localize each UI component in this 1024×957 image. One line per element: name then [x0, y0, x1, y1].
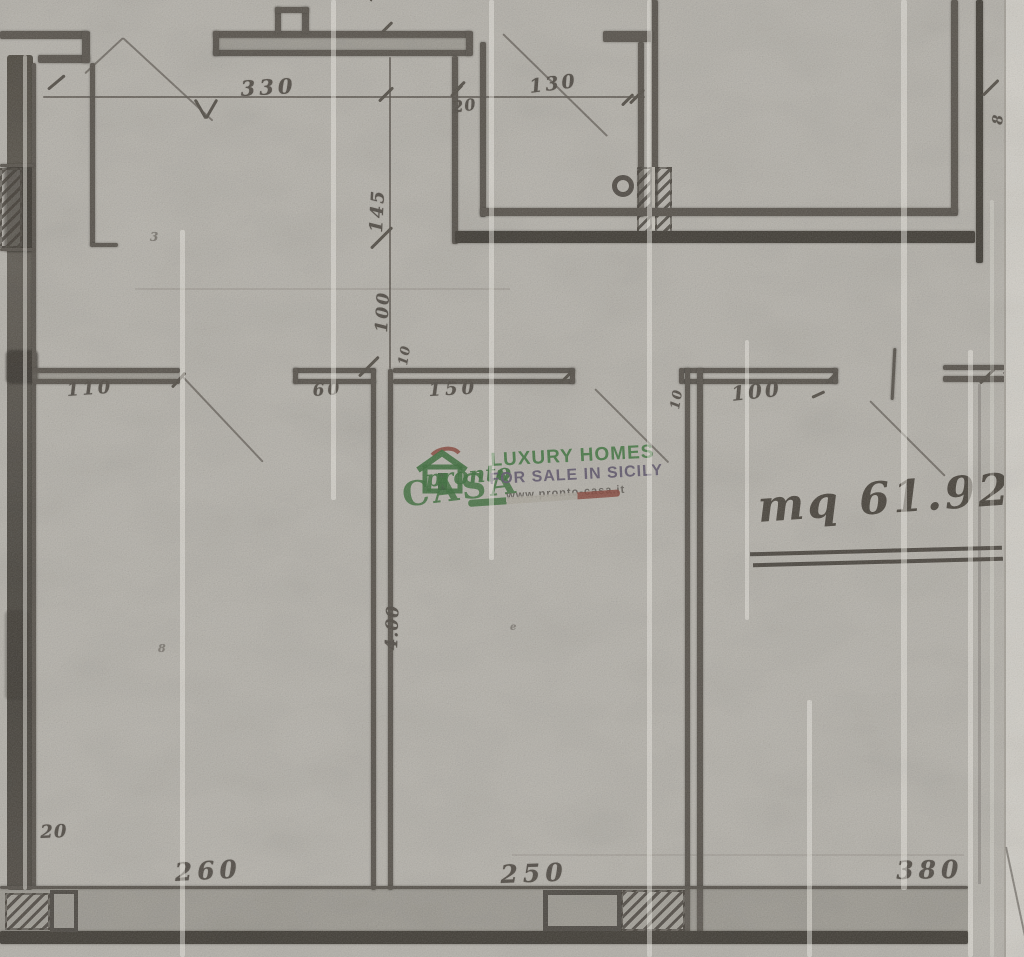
scan-fold-streak [745, 340, 749, 620]
scan-fold-streak [331, 0, 336, 500]
scan-fold-streak [180, 230, 185, 957]
page-edge [1004, 0, 1024, 957]
floorplan-scan: 1 2 20 330 130 20 8 145 100 10 110 60 15… [0, 0, 1024, 957]
scan-fold-streak [968, 350, 973, 957]
scan-fold-streak [807, 700, 812, 957]
watermark-logo: pronto CASA LUXURY HOMES FOR SALE IN SIC… [0, 0, 1024, 957]
scan-fold-streak [489, 0, 494, 560]
scan-fold-streak [901, 0, 907, 890]
scan-fold-streak [990, 200, 994, 957]
scan-fold-streak [647, 0, 652, 957]
scan-fold-streak [23, 55, 27, 890]
